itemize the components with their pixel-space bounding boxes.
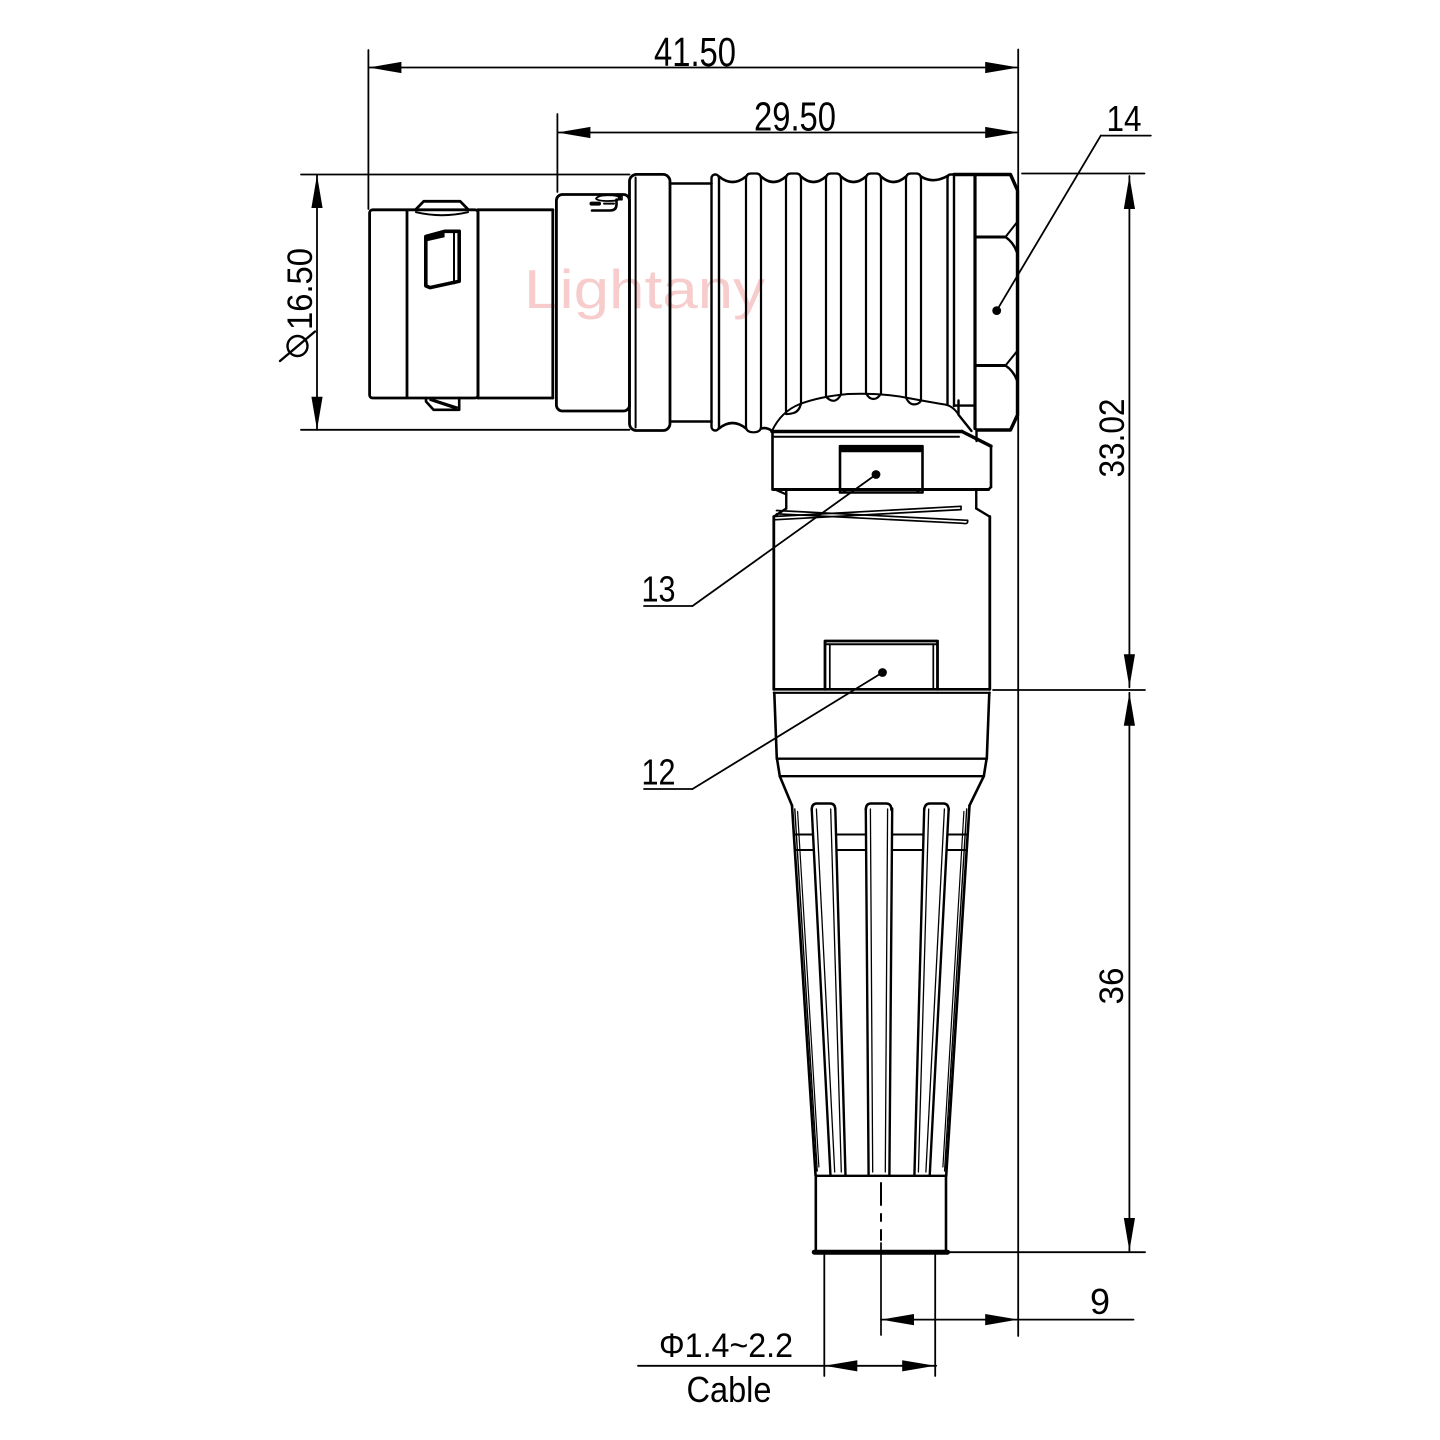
svg-text:41.50: 41.50 [654, 29, 736, 75]
svg-text:Lightany: Lightany [524, 258, 766, 320]
svg-text:29.50: 29.50 [754, 94, 836, 140]
svg-text:9: 9 [1090, 1281, 1110, 1322]
svg-text:14: 14 [1107, 98, 1142, 139]
svg-text:Φ1.4~2.2: Φ1.4~2.2 [659, 1327, 793, 1365]
svg-text:16.50: 16.50 [281, 248, 320, 330]
svg-text:13: 13 [642, 569, 676, 610]
svg-text:Cable: Cable [687, 1369, 772, 1410]
svg-text:36: 36 [1093, 968, 1131, 1005]
svg-text:33.02: 33.02 [1093, 399, 1132, 478]
svg-text:12: 12 [642, 752, 676, 793]
